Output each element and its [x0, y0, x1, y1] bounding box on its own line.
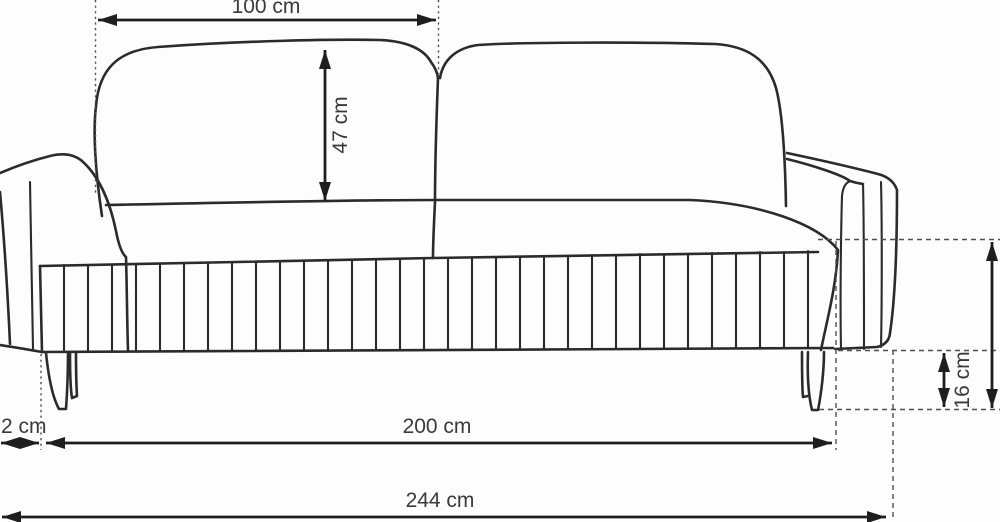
left-armrest-pleat — [30, 182, 33, 349]
total-width-dimension: 244 cm — [2, 489, 886, 517]
backrest-height-dimension: 47 cm — [325, 50, 352, 201]
right-armrest-pleat-2 — [881, 182, 882, 347]
seat-width-dimension: 200 cm — [46, 415, 832, 443]
seat-width-label: 200 cm — [403, 415, 472, 438]
leg-height-label: 16 cm — [951, 351, 974, 408]
sofa-drawing — [0, 40, 897, 410]
skirt-top-edge — [40, 252, 818, 266]
armrest-width-dimension: 2 cm — [1, 415, 47, 443]
backrest-left-cushion — [95, 40, 438, 216]
right-armrest-band — [787, 159, 863, 184]
backrest-right-cushion — [440, 43, 786, 206]
backrest-width-label: 100 cm — [232, 0, 301, 18]
backrest-seam — [433, 78, 438, 258]
armrest-width-label: 2 cm — [1, 415, 47, 438]
right-armrest-pleat-1 — [863, 184, 864, 349]
left-leg — [46, 353, 77, 409]
sofa-dimension-diagram: 100 cm 47 cm 2 cm 200 cm 244 cm 16 cm — [0, 0, 1000, 522]
left-armrest-inner-edge — [40, 266, 42, 352]
diagram-canvas: 100 cm 47 cm 2 cm 200 cm 244 cm 16 cm — [0, 0, 1000, 522]
total-width-label: 244 cm — [406, 489, 475, 512]
left-armrest-bottom-edge — [0, 345, 42, 352]
right-leg — [802, 352, 824, 410]
left-armrest-outer-edge — [0, 192, 10, 344]
backrest-width-dimension: 100 cm — [98, 0, 436, 20]
skirt-pleats — [64, 251, 808, 352]
backrest-height-label: 47 cm — [329, 96, 352, 153]
right-armrest-front-edge — [841, 181, 850, 349]
leg-height-dimension: 16 cm — [944, 351, 974, 408]
